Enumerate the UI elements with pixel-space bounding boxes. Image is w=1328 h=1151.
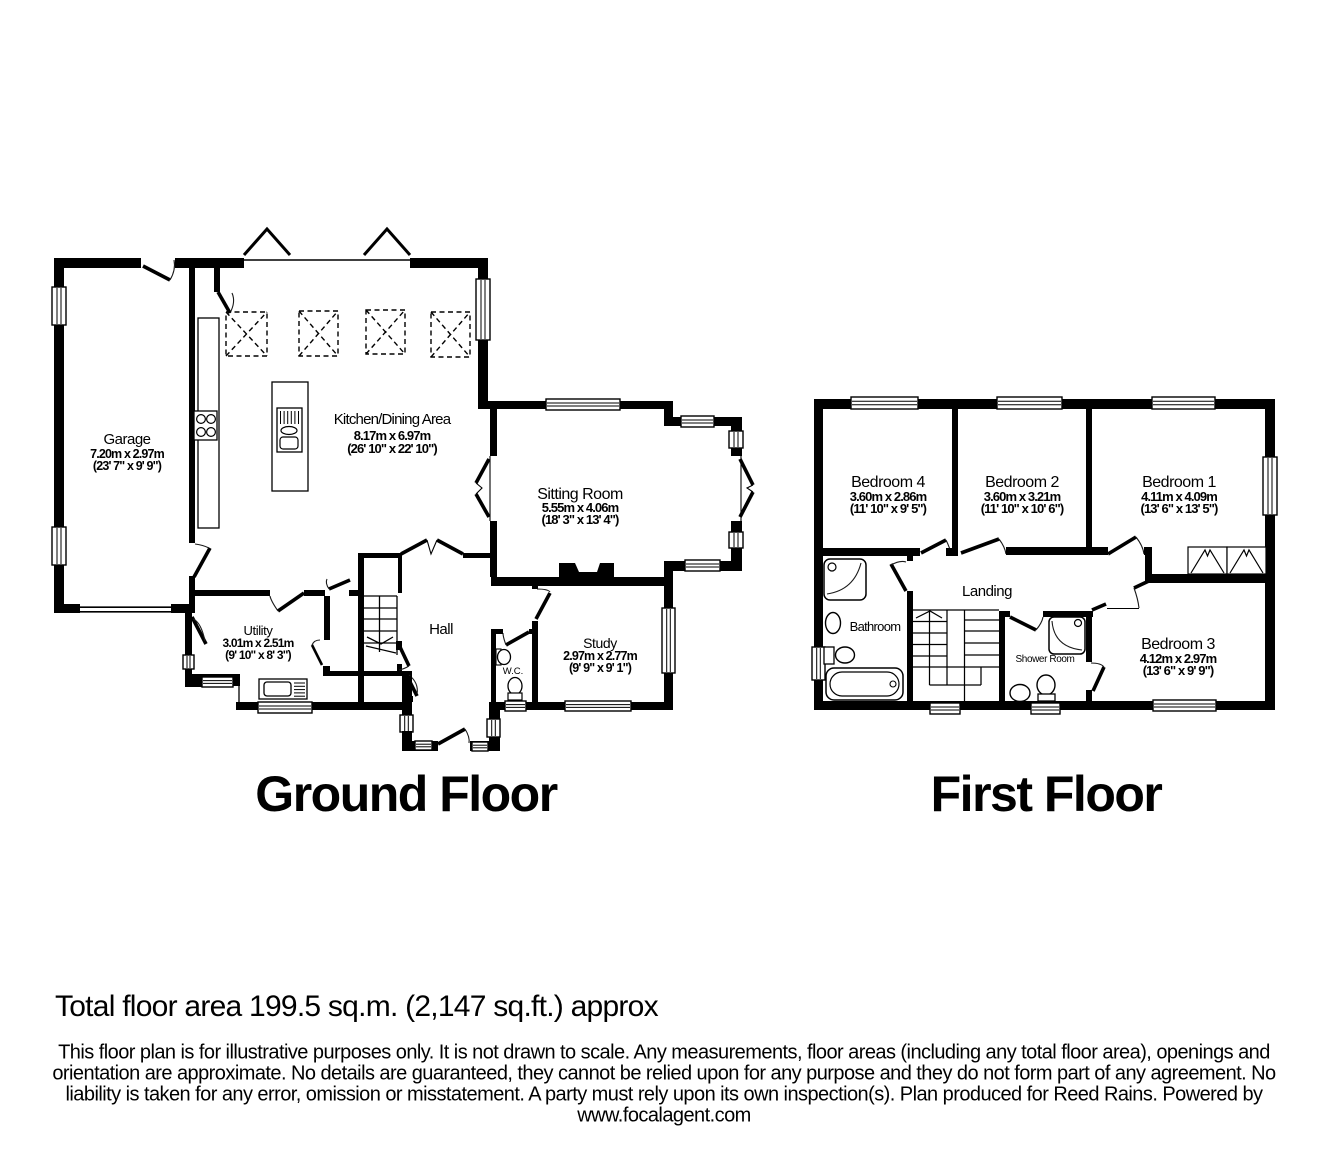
svg-text:(13' 6" x 13' 5"): (13' 6" x 13' 5"): [1141, 501, 1218, 516]
svg-text:Ground Floor: Ground Floor: [255, 766, 557, 822]
svg-text:Hall: Hall: [429, 621, 453, 638]
svg-text:(23' 7" x 9' 9"): (23' 7" x 9' 9"): [93, 459, 162, 473]
svg-text:(9' 9" x 9' 1"): (9' 9" x 9' 1"): [569, 661, 632, 675]
svg-text:(13' 6" x 9' 9"): (13' 6" x 9' 9"): [1143, 663, 1214, 678]
svg-text:Landing: Landing: [962, 583, 1012, 600]
svg-text:Garage: Garage: [103, 431, 150, 448]
svg-text:Shower Room: Shower Room: [1016, 654, 1075, 665]
svg-text:Kitchen/Dining Area: Kitchen/Dining Area: [334, 411, 452, 428]
svg-text:Total floor area 199.5 sq.m. (: Total floor area 199.5 sq.m. (2,147 sq.f…: [55, 990, 659, 1023]
svg-text:First Floor: First Floor: [931, 766, 1163, 822]
svg-text:Bathroom: Bathroom: [850, 619, 901, 634]
svg-text:W.C.: W.C.: [503, 666, 524, 677]
svg-text:orientation are approximate. N: orientation are approximate. No details …: [52, 1063, 1276, 1085]
svg-text:www.focalagent.com: www.focalagent.com: [576, 1105, 751, 1127]
svg-text:(11' 10" x 9' 5"): (11' 10" x 9' 5"): [850, 501, 927, 516]
svg-text:(18' 3" x 13' 4"): (18' 3" x 13' 4"): [542, 512, 619, 527]
svg-text:liability is taken for any err: liability is taken for any error, omissi…: [66, 1084, 1263, 1106]
svg-text:(9' 10" x 8' 3"): (9' 10" x 8' 3"): [225, 648, 291, 662]
svg-text:This floor plan is for illustr: This floor plan is for illustrative purp…: [58, 1042, 1270, 1064]
svg-text:(11' 10" x 10' 6"): (11' 10" x 10' 6"): [981, 501, 1064, 516]
svg-text:(26' 10" x 22' 10"): (26' 10" x 22' 10"): [347, 441, 437, 456]
